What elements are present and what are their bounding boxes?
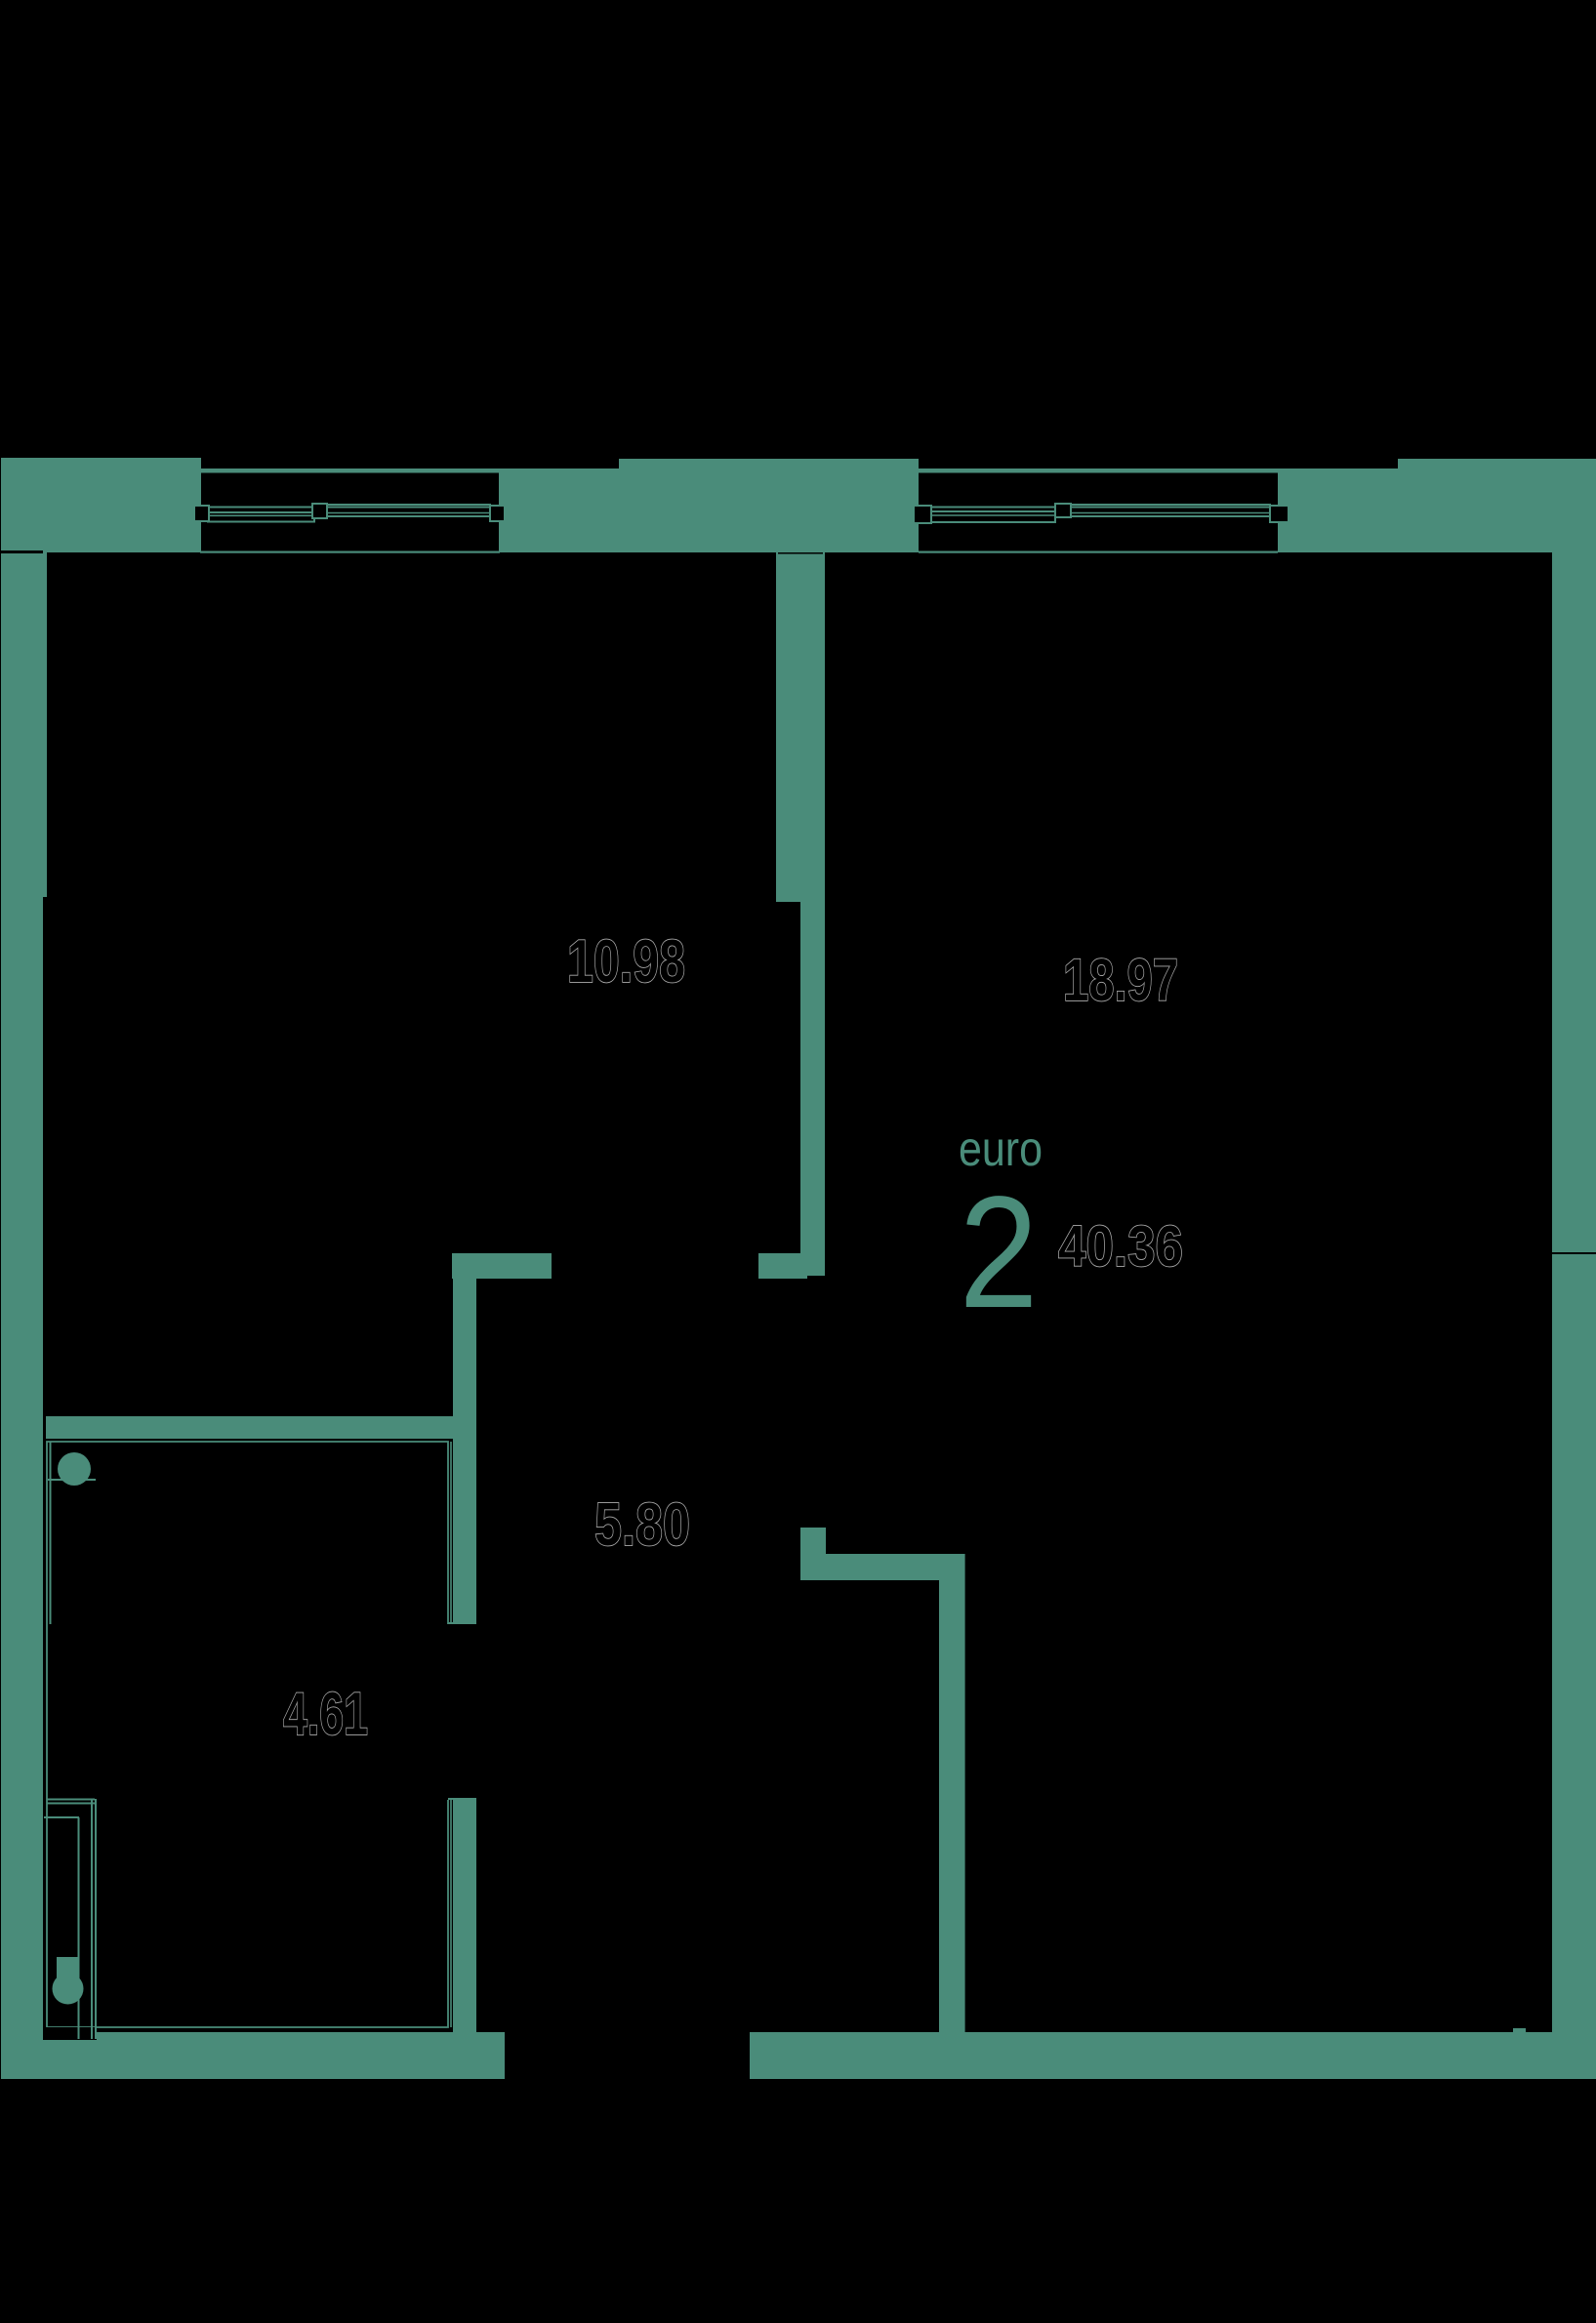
svg-text:5.80: 5.80 <box>594 1491 690 1559</box>
svg-text:2: 2 <box>960 1162 1039 1341</box>
svg-text:40.36: 40.36 <box>1058 1214 1183 1279</box>
svg-text:4.61: 4.61 <box>283 1681 368 1748</box>
svg-text:18.97: 18.97 <box>1063 947 1178 1013</box>
svg-text:10.98: 10.98 <box>567 928 685 996</box>
